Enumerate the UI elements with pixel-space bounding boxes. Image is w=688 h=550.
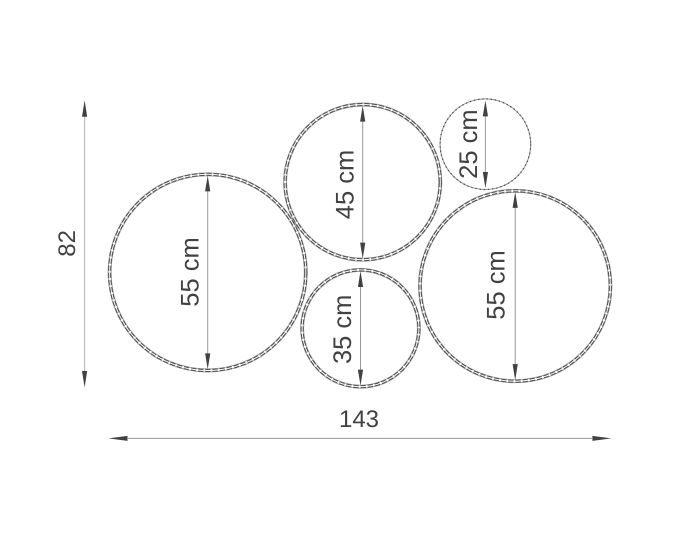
svg-text:82: 82 bbox=[54, 230, 81, 257]
svg-text:35 cm: 35 cm bbox=[329, 295, 357, 364]
svg-text:55 cm: 55 cm bbox=[483, 250, 511, 319]
svg-text:25 cm: 25 cm bbox=[455, 109, 483, 178]
svg-text:55 cm: 55 cm bbox=[177, 237, 205, 306]
svg-text:45 cm: 45 cm bbox=[332, 150, 360, 219]
svg-text:143: 143 bbox=[339, 406, 379, 433]
